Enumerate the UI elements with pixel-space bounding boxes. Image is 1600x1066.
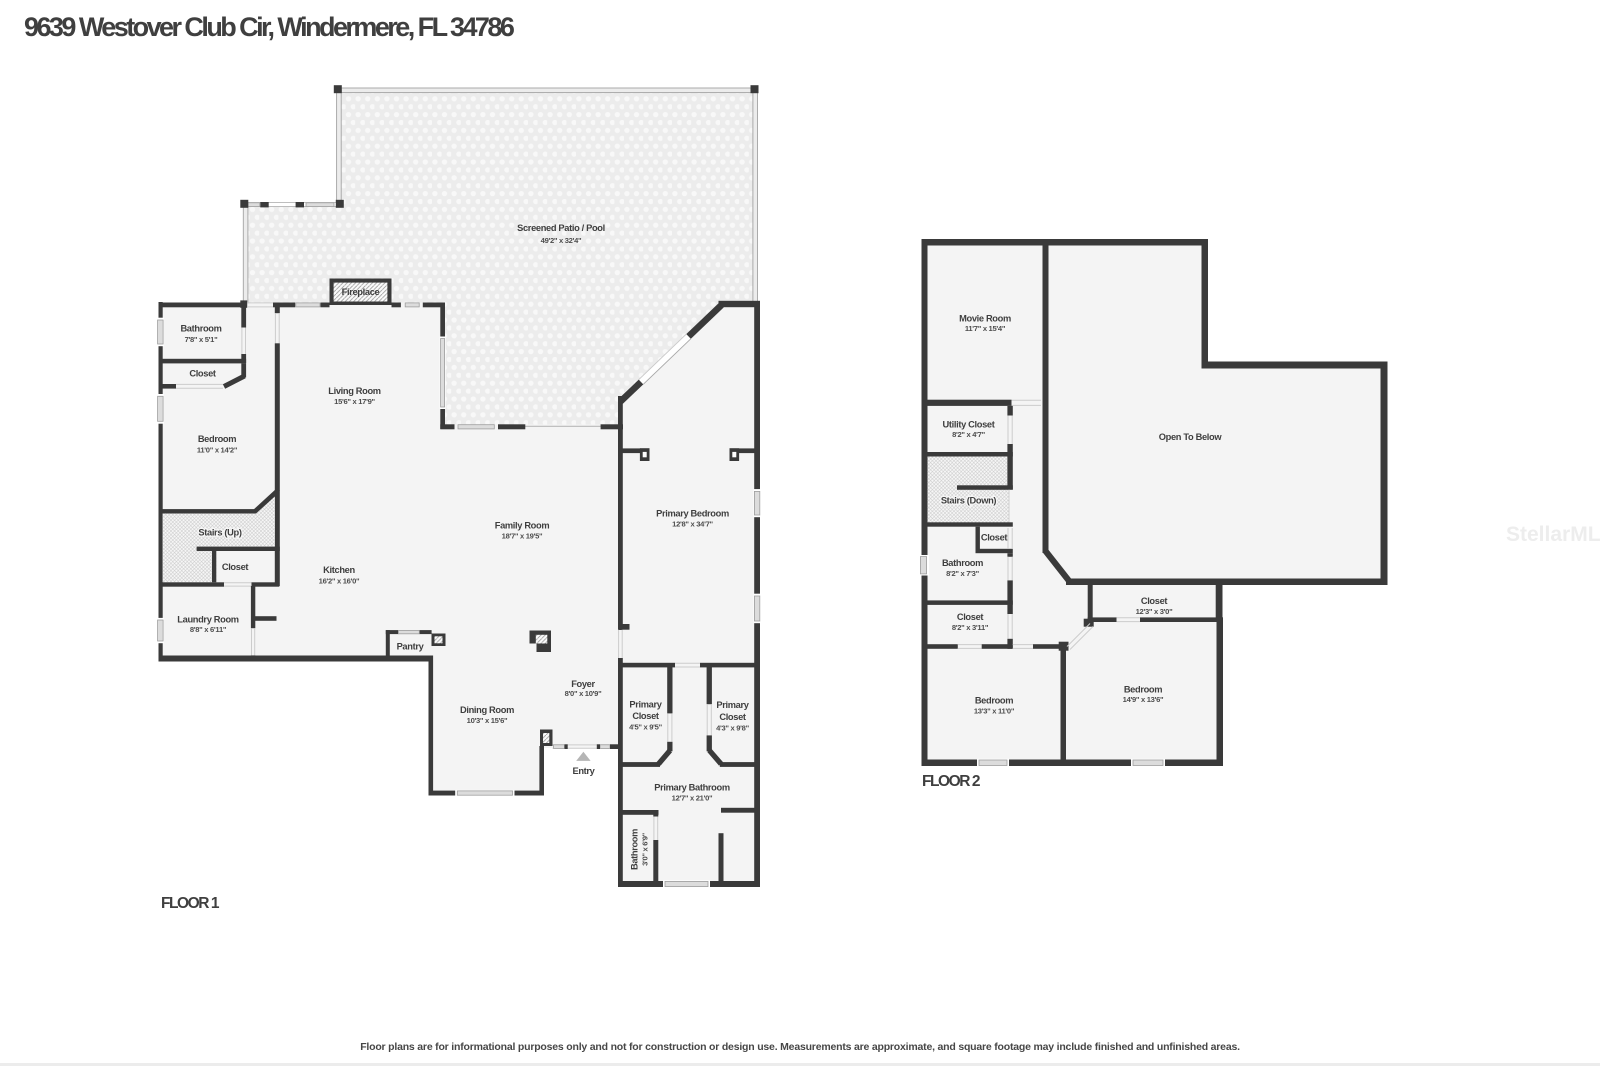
svg-text:Closet: Closet: [719, 712, 746, 722]
svg-text:49'2" x 32'4": 49'2" x 32'4": [541, 236, 582, 245]
svg-text:Bathroom: Bathroom: [630, 829, 640, 870]
svg-text:4'5" x 9'5": 4'5" x 9'5": [629, 723, 663, 732]
svg-text:Bedroom: Bedroom: [198, 434, 236, 444]
svg-text:14'9" x 13'6": 14'9" x 13'6": [1123, 695, 1164, 704]
svg-text:Foyer: Foyer: [571, 679, 595, 689]
svg-text:Living Room: Living Room: [328, 386, 381, 396]
svg-text:Open To Below: Open To Below: [1159, 432, 1223, 442]
svg-text:Closet: Closet: [632, 711, 659, 721]
svg-text:7'8" x 5'1": 7'8" x 5'1": [185, 335, 219, 344]
svg-text:Entry: Entry: [572, 766, 595, 776]
svg-text:Bathroom: Bathroom: [180, 323, 221, 333]
svg-text:15'6" x 17'9": 15'6" x 17'9": [334, 397, 375, 406]
svg-text:Laundry Room: Laundry Room: [177, 614, 238, 624]
svg-text:Primary Bathroom: Primary Bathroom: [654, 782, 730, 792]
svg-text:13'3" x 11'0": 13'3" x 11'0": [974, 706, 1015, 715]
svg-text:11'0" x 14'2": 11'0" x 14'2": [197, 446, 238, 455]
svg-text:Primary: Primary: [716, 700, 749, 710]
svg-text:Closet: Closet: [1141, 596, 1168, 606]
svg-text:Closet: Closet: [189, 369, 216, 379]
svg-text:FLOOR 2: FLOOR 2: [922, 773, 980, 790]
svg-text:Stairs (Up): Stairs (Up): [198, 528, 241, 538]
svg-text:8'0" x 10'9": 8'0" x 10'9": [565, 689, 602, 698]
svg-text:Screened Patio / Pool: Screened Patio / Pool: [517, 223, 605, 233]
svg-text:Fireplace: Fireplace: [342, 287, 380, 297]
svg-text:Pantry: Pantry: [397, 642, 425, 652]
svg-text:Bedroom: Bedroom: [975, 696, 1013, 706]
svg-text:Movie Room: Movie Room: [959, 313, 1011, 323]
svg-text:StellarMLS: StellarMLS: [1506, 523, 1600, 546]
svg-text:Closet: Closet: [222, 562, 249, 572]
svg-text:Bedroom: Bedroom: [1124, 684, 1162, 694]
svg-text:11'7" x 15'4": 11'7" x 15'4": [965, 324, 1006, 333]
svg-text:Bathroom: Bathroom: [942, 558, 983, 568]
svg-text:8'8" x 6'11": 8'8" x 6'11": [190, 625, 227, 634]
svg-text:Closet: Closet: [981, 533, 1008, 543]
svg-text:Kitchen: Kitchen: [323, 565, 355, 575]
svg-text:4'3" x 9'8": 4'3" x 9'8": [716, 723, 750, 732]
svg-text:Dining Room: Dining Room: [460, 705, 514, 715]
svg-text:Closet: Closet: [957, 612, 984, 622]
svg-text:12'3" x 3'0": 12'3" x 3'0": [1136, 607, 1173, 616]
svg-text:12'7" x 21'0": 12'7" x 21'0": [672, 794, 713, 803]
svg-text:8'2" x 3'11": 8'2" x 3'11": [952, 623, 989, 632]
svg-text:Floor plans are for informatio: Floor plans are for informational purpos…: [360, 1041, 1240, 1053]
svg-text:18'7" x 19'5": 18'7" x 19'5": [502, 532, 543, 541]
svg-text:8'2" x 4'7": 8'2" x 4'7": [952, 430, 986, 439]
svg-text:12'8" x 34'7": 12'8" x 34'7": [672, 520, 713, 529]
svg-text:Utility Closet: Utility Closet: [943, 420, 995, 430]
svg-text:Primary: Primary: [629, 699, 662, 709]
svg-text:FLOOR 1: FLOOR 1: [161, 895, 220, 912]
svg-text:10'3" x 15'6": 10'3" x 15'6": [467, 716, 508, 725]
svg-text:Family Room: Family Room: [495, 521, 550, 531]
svg-text:16'2" x 16'0": 16'2" x 16'0": [319, 577, 360, 586]
svg-text:8'2" x 7'3": 8'2" x 7'3": [946, 569, 980, 578]
svg-text:9639 Westover Club Cir, Winder: 9639 Westover Club Cir, Windermere, FL 3…: [24, 12, 515, 42]
svg-text:Stairs (Down): Stairs (Down): [941, 495, 997, 505]
svg-text:Primary Bedroom: Primary Bedroom: [656, 508, 729, 518]
svg-text:3'0" x 6'9": 3'0" x 6'9": [641, 832, 650, 866]
